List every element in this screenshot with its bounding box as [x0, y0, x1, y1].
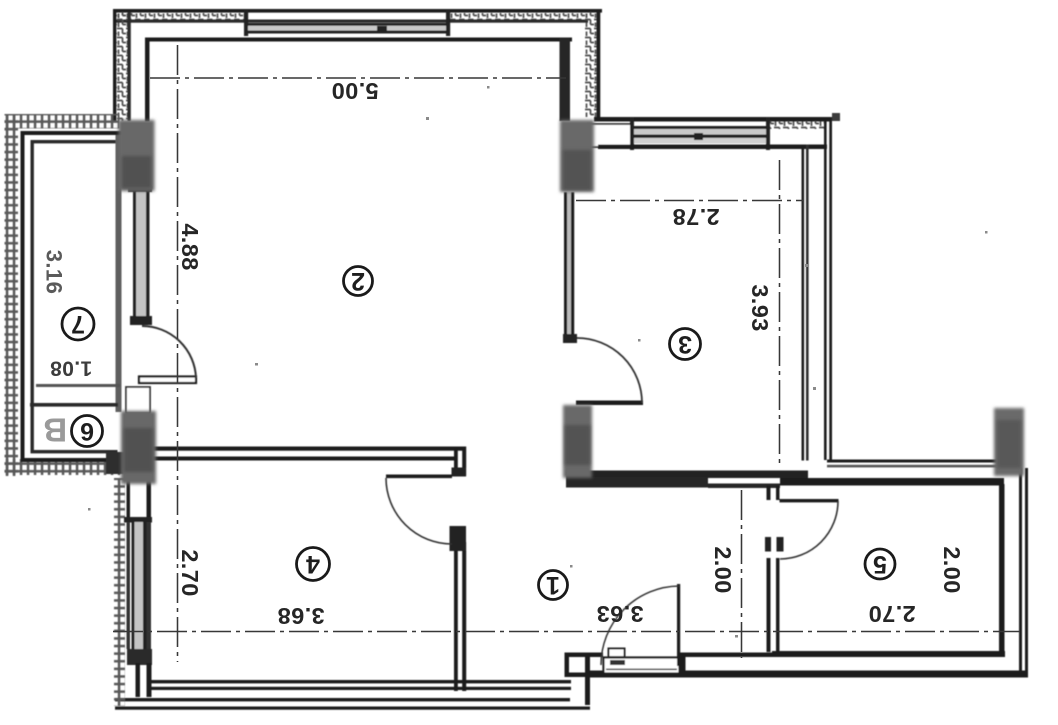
svg-text:7: 7: [71, 310, 85, 338]
svg-text:B: B: [43, 412, 67, 449]
svg-text:2.78: 2.78: [672, 204, 719, 230]
svg-text:3.68: 3.68: [277, 603, 324, 629]
svg-text:2: 2: [351, 267, 365, 295]
svg-text:2.70: 2.70: [868, 601, 915, 627]
svg-text:1: 1: [546, 571, 560, 599]
svg-text:5: 5: [873, 550, 887, 578]
svg-text:2.00: 2.00: [710, 546, 736, 593]
svg-text:4.88: 4.88: [177, 223, 203, 270]
svg-text:4: 4: [306, 550, 320, 578]
svg-text:5.00: 5.00: [331, 78, 378, 104]
svg-text:3: 3: [678, 330, 692, 358]
svg-text:2.00: 2.00: [939, 546, 965, 593]
svg-text:2.70: 2.70: [177, 549, 203, 596]
svg-text:3.16: 3.16: [42, 250, 67, 294]
svg-text:1.08: 1.08: [50, 357, 92, 380]
svg-text:3.93: 3.93: [747, 284, 773, 331]
svg-text:6: 6: [80, 417, 94, 445]
svg-text:3.63: 3.63: [596, 601, 643, 627]
